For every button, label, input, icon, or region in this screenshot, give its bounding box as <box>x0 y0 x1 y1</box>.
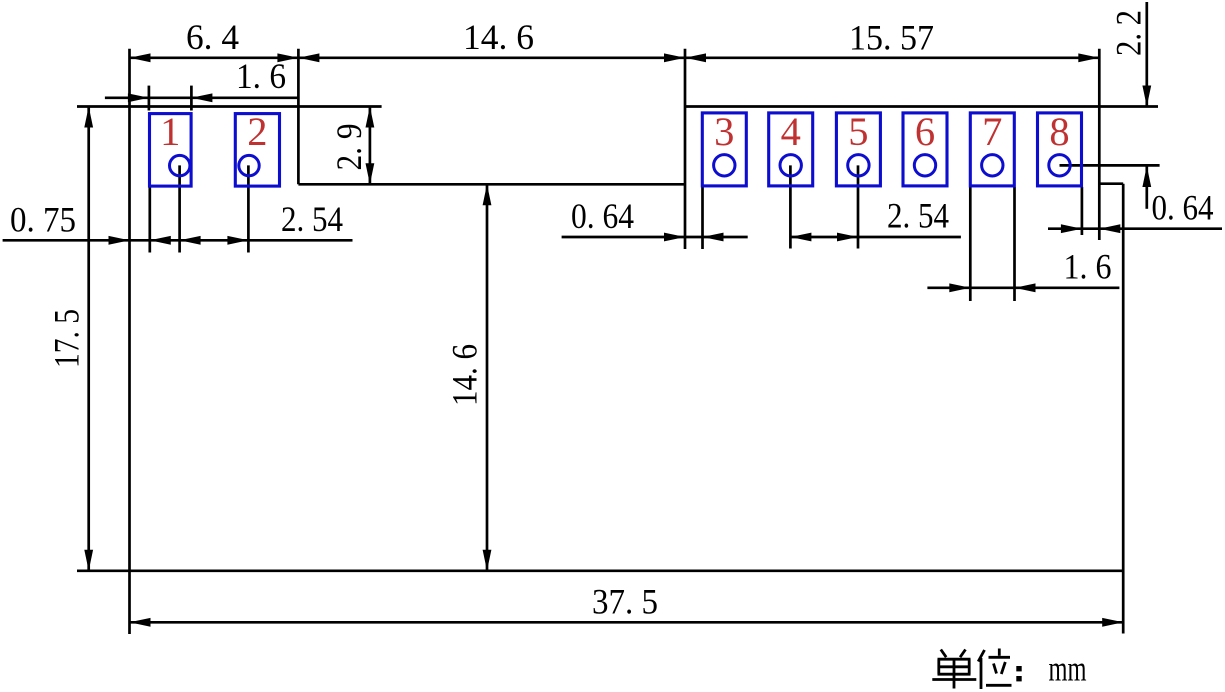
svg-text:0. 64: 0. 64 <box>1152 188 1214 228</box>
svg-text:mm: mm <box>1049 649 1087 689</box>
svg-text:1. 6: 1. 6 <box>236 56 286 96</box>
svg-text:2: 2 <box>247 109 267 154</box>
svg-text:1. 6: 1. 6 <box>1064 247 1112 287</box>
svg-text:15. 57: 15. 57 <box>849 18 934 58</box>
svg-text:17. 5: 17. 5 <box>47 309 87 368</box>
svg-text:5: 5 <box>848 109 868 154</box>
svg-text:6: 6 <box>915 109 935 154</box>
svg-text:7: 7 <box>982 109 1002 154</box>
svg-text:0. 64: 0. 64 <box>571 196 634 236</box>
svg-text:2. 9: 2. 9 <box>329 124 369 171</box>
svg-text:2. 2: 2. 2 <box>1109 10 1149 56</box>
svg-text:2. 54: 2. 54 <box>281 199 343 239</box>
svg-text:8: 8 <box>1049 109 1069 154</box>
svg-text:1: 1 <box>160 109 180 154</box>
svg-text:3: 3 <box>714 109 734 154</box>
svg-text:6. 4: 6. 4 <box>186 17 239 57</box>
svg-text:4: 4 <box>781 109 801 154</box>
svg-text:14. 6: 14. 6 <box>463 17 534 57</box>
svg-text:14. 6: 14. 6 <box>445 344 485 406</box>
svg-text:0. 75: 0. 75 <box>10 200 76 240</box>
svg-text:37. 5: 37. 5 <box>592 582 658 622</box>
svg-text:2. 54: 2. 54 <box>887 196 949 236</box>
